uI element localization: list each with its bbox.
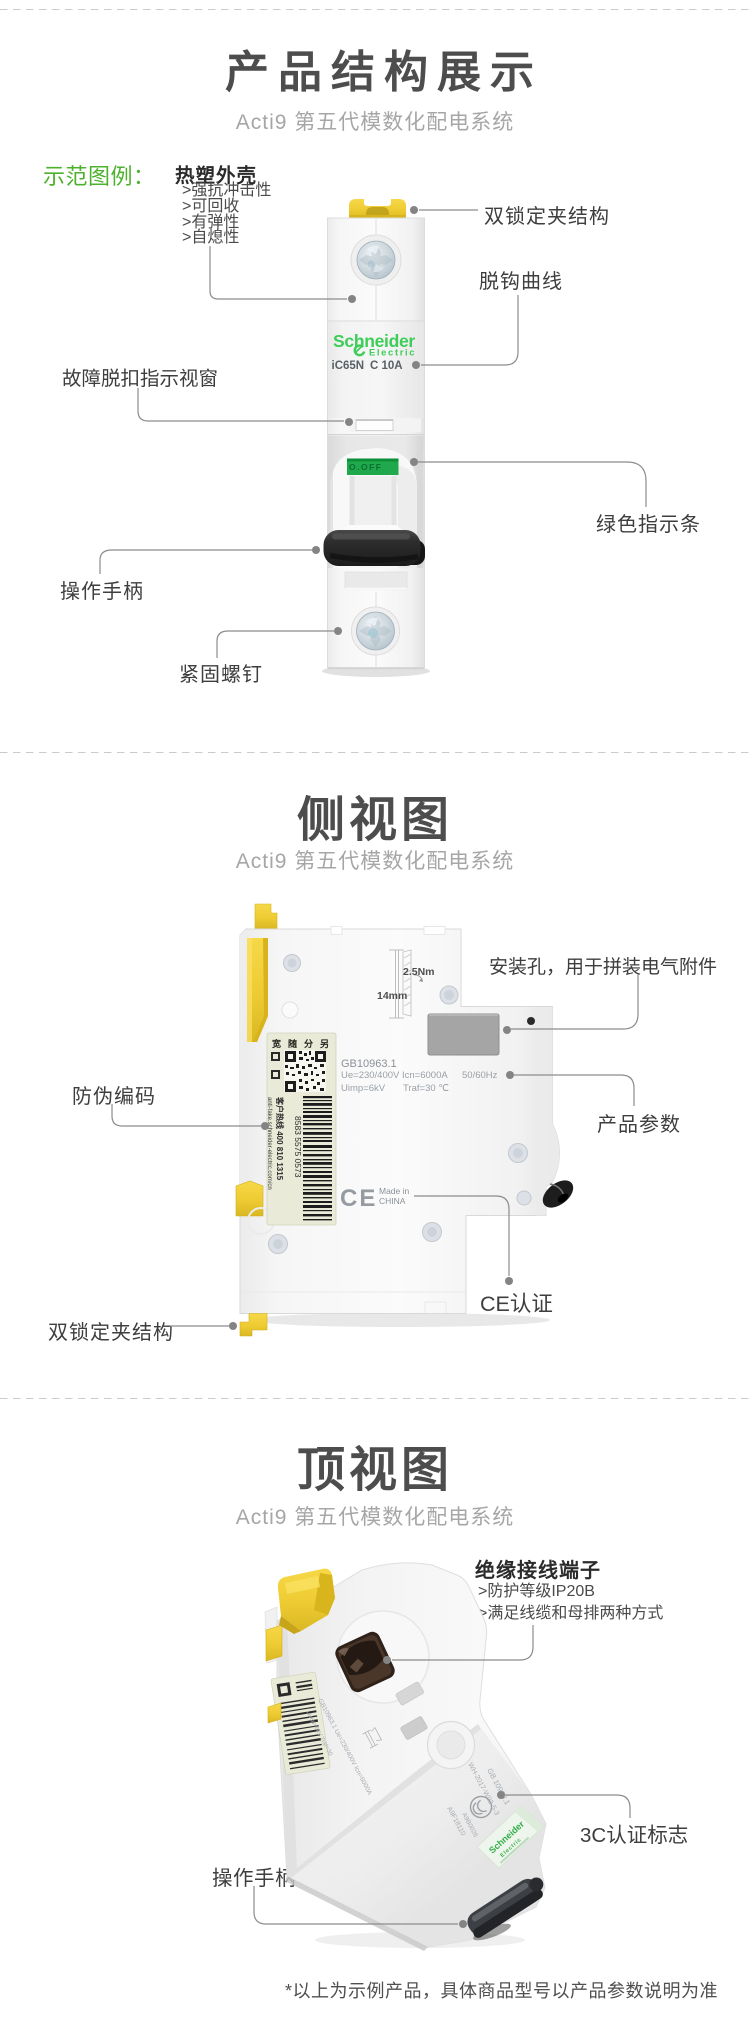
- svg-text:O.OFF: O.OFF: [349, 462, 382, 472]
- svg-text:C 10A: C 10A: [370, 360, 403, 372]
- svg-text:iC65N: iC65N: [332, 360, 365, 372]
- svg-text:宽随分另: 宽随分另: [271, 1038, 336, 1049]
- svg-text:Uimp=6kV: Uimp=6kV: [341, 1083, 386, 1094]
- svg-text:Made in: Made in: [379, 1186, 410, 1196]
- svg-text:50/60Hz: 50/60Hz: [462, 1070, 498, 1081]
- svg-text:CE: CE: [340, 1185, 377, 1212]
- svg-text:14mm: 14mm: [377, 990, 407, 1002]
- svg-text:2.5Nm: 2.5Nm: [403, 966, 435, 978]
- svg-text:客户热线 400 810 1315: 客户热线 400 810 1315: [275, 1096, 285, 1181]
- svg-text:Electric: Electric: [369, 348, 416, 359]
- svg-text:Ue=230/400V: Ue=230/400V: [341, 1070, 400, 1081]
- svg-text:8583 5575 0573: 8583 5575 0573: [293, 1116, 303, 1178]
- svg-text:GB10963.1: GB10963.1: [341, 1058, 397, 1070]
- svg-text:anti-fake.schneider-electric.c: anti-fake.schneider-electric.com/cn: [266, 1097, 272, 1190]
- svg-text:Traf=30 ℃: Traf=30 ℃: [403, 1083, 449, 1094]
- svg-text:Icn=6000A: Icn=6000A: [402, 1070, 448, 1081]
- svg-text:CHINA: CHINA: [379, 1196, 406, 1206]
